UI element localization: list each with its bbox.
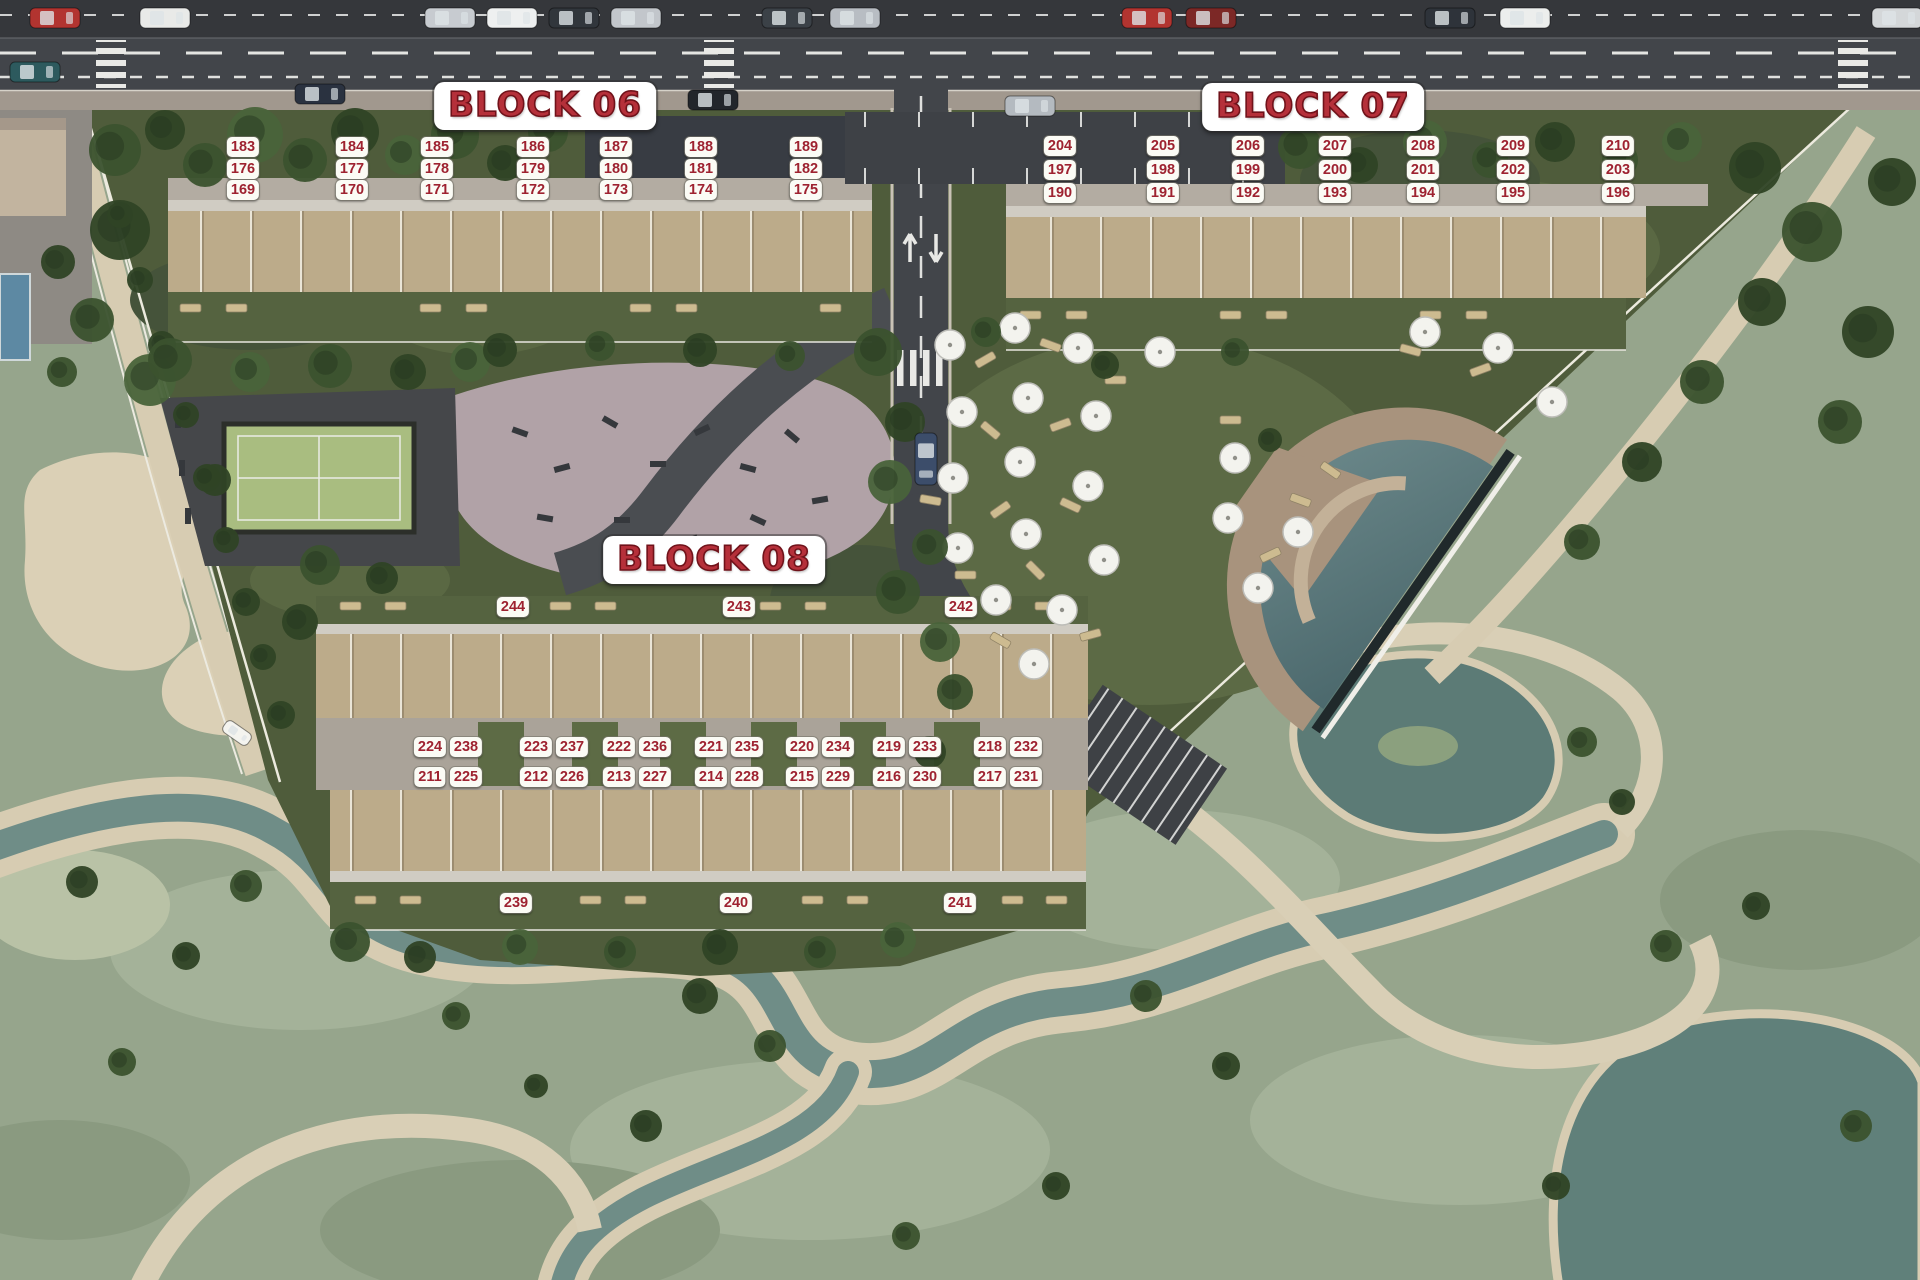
unit-label-195[interactable]: 195 xyxy=(1497,183,1529,203)
block-06-title: BLOCK 06 xyxy=(434,82,656,130)
unit-label-222[interactable]: 222 xyxy=(603,737,635,757)
unit-label-201[interactable]: 201 xyxy=(1407,160,1439,180)
unit-label-220[interactable]: 220 xyxy=(786,737,818,757)
unit-label-214[interactable]: 214 xyxy=(695,767,727,787)
unit-label-211[interactable]: 211 xyxy=(414,767,445,787)
unit-label-221[interactable]: 221 xyxy=(695,737,727,757)
unit-label-203[interactable]: 203 xyxy=(1602,160,1634,180)
unit-label-182[interactable]: 182 xyxy=(790,159,822,179)
unit-label-192[interactable]: 192 xyxy=(1232,183,1264,203)
unit-label-242[interactable]: 242 xyxy=(945,597,977,617)
unit-label-210[interactable]: 210 xyxy=(1602,136,1634,156)
unit-label-243[interactable]: 243 xyxy=(723,597,755,617)
unit-label-176[interactable]: 176 xyxy=(227,159,259,179)
unit-label-216[interactable]: 216 xyxy=(873,767,905,787)
unit-label-197[interactable]: 197 xyxy=(1044,160,1076,180)
unit-label-224[interactable]: 224 xyxy=(414,737,446,757)
unit-label-236[interactable]: 236 xyxy=(639,737,671,757)
unit-label-225[interactable]: 225 xyxy=(450,767,482,787)
unit-label-241[interactable]: 241 xyxy=(944,893,976,913)
unit-label-231[interactable]: 231 xyxy=(1010,767,1042,787)
unit-label-194[interactable]: 194 xyxy=(1407,183,1439,203)
unit-label-178[interactable]: 178 xyxy=(421,159,453,179)
unit-label-181[interactable]: 181 xyxy=(685,159,717,179)
unit-label-185[interactable]: 185 xyxy=(421,137,453,157)
unit-label-174[interactable]: 174 xyxy=(685,180,717,200)
unit-label-202[interactable]: 202 xyxy=(1497,160,1529,180)
unit-label-235[interactable]: 235 xyxy=(731,737,763,757)
unit-label-205[interactable]: 205 xyxy=(1147,136,1179,156)
unit-label-190[interactable]: 190 xyxy=(1044,183,1076,203)
unit-label-209[interactable]: 209 xyxy=(1497,136,1529,156)
unit-label-191[interactable]: 191 xyxy=(1147,183,1179,203)
unit-label-213[interactable]: 213 xyxy=(603,767,635,787)
unit-label-208[interactable]: 208 xyxy=(1407,136,1439,156)
plan-labels: BLOCK 06 BLOCK 07 BLOCK 08 1831841851861… xyxy=(0,0,1920,1280)
unit-label-228[interactable]: 228 xyxy=(731,767,763,787)
unit-label-193[interactable]: 193 xyxy=(1319,183,1351,203)
unit-label-223[interactable]: 223 xyxy=(520,737,552,757)
unit-label-184[interactable]: 184 xyxy=(336,137,368,157)
unit-label-177[interactable]: 177 xyxy=(336,159,368,179)
unit-label-238[interactable]: 238 xyxy=(450,737,482,757)
unit-label-179[interactable]: 179 xyxy=(517,159,549,179)
unit-label-215[interactable]: 215 xyxy=(786,767,818,787)
unit-label-187[interactable]: 187 xyxy=(600,137,632,157)
unit-label-188[interactable]: 188 xyxy=(685,137,717,157)
unit-label-199[interactable]: 199 xyxy=(1232,160,1264,180)
unit-label-237[interactable]: 237 xyxy=(556,737,588,757)
unit-label-189[interactable]: 189 xyxy=(790,137,822,157)
unit-label-229[interactable]: 229 xyxy=(822,767,854,787)
unit-label-186[interactable]: 186 xyxy=(517,137,549,157)
unit-label-169[interactable]: 169 xyxy=(227,180,259,200)
unit-label-219[interactable]: 219 xyxy=(873,737,905,757)
unit-label-175[interactable]: 175 xyxy=(790,180,822,200)
unit-label-207[interactable]: 207 xyxy=(1319,136,1351,156)
unit-label-183[interactable]: 183 xyxy=(227,137,259,157)
block-08-title: BLOCK 08 xyxy=(603,536,825,584)
unit-label-217[interactable]: 217 xyxy=(974,767,1006,787)
masterplan-site-map: BLOCK 06 BLOCK 07 BLOCK 08 1831841851861… xyxy=(0,0,1920,1280)
unit-label-212[interactable]: 212 xyxy=(520,767,552,787)
unit-label-227[interactable]: 227 xyxy=(639,767,671,787)
unit-label-234[interactable]: 234 xyxy=(822,737,854,757)
unit-label-173[interactable]: 173 xyxy=(600,180,632,200)
unit-label-204[interactable]: 204 xyxy=(1044,136,1076,156)
unit-label-170[interactable]: 170 xyxy=(336,180,368,200)
unit-label-244[interactable]: 244 xyxy=(497,597,529,617)
block-07-title: BLOCK 07 xyxy=(1202,83,1424,131)
unit-label-218[interactable]: 218 xyxy=(974,737,1006,757)
unit-label-226[interactable]: 226 xyxy=(556,767,588,787)
unit-label-206[interactable]: 206 xyxy=(1232,136,1264,156)
unit-label-232[interactable]: 232 xyxy=(1010,737,1042,757)
unit-label-180[interactable]: 180 xyxy=(600,159,632,179)
unit-label-196[interactable]: 196 xyxy=(1602,183,1634,203)
unit-label-240[interactable]: 240 xyxy=(720,893,752,913)
unit-label-239[interactable]: 239 xyxy=(500,893,532,913)
unit-label-171[interactable]: 171 xyxy=(421,180,453,200)
unit-label-198[interactable]: 198 xyxy=(1147,160,1179,180)
unit-label-172[interactable]: 172 xyxy=(517,180,549,200)
unit-label-230[interactable]: 230 xyxy=(909,767,941,787)
unit-label-233[interactable]: 233 xyxy=(909,737,941,757)
unit-label-200[interactable]: 200 xyxy=(1319,160,1351,180)
